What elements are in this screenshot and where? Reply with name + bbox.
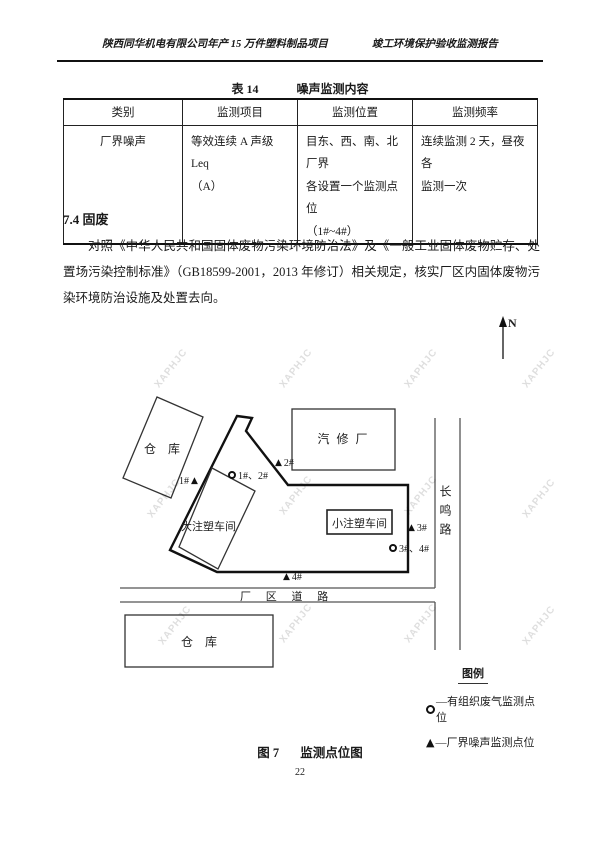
large-workshop-label: 大注塑车间 bbox=[181, 518, 236, 534]
figure-caption: 图 7 监测点位图 bbox=[110, 742, 510, 761]
legend-title: 图例 bbox=[458, 665, 488, 684]
auto-repair-label: 汽 修 厂 bbox=[292, 430, 395, 447]
noise-point-4-label: 4# bbox=[292, 572, 302, 583]
page-number: 22 bbox=[0, 767, 600, 778]
cell-frequency: 连续监测 2 天，昼夜各 监测一次 bbox=[413, 125, 538, 244]
table-number: 表 14 bbox=[231, 80, 258, 97]
section-heading: 7.4 固废 bbox=[63, 209, 109, 228]
noise-point-icon: ▲ bbox=[283, 573, 290, 582]
section-paragraph: 对照《中华人民共和国固体废物污染环境防治法》及《一般工业固体废物贮存、处置场污染… bbox=[63, 233, 540, 311]
noise-point-1-label: 1# bbox=[179, 476, 189, 487]
col-header-category: 类别 bbox=[64, 99, 183, 125]
running-header: 陕西同华机电有限公司年产 15 万件塑料制品项目 竣工环境保护验收监测报告 bbox=[57, 36, 543, 51]
factory-road-label: 厂 区 道 路 bbox=[240, 588, 330, 604]
warehouse-bottom-label: 仓 库 bbox=[157, 633, 241, 650]
col-header-location: 监测位置 bbox=[298, 99, 413, 125]
noise-point-3-label: 3# bbox=[417, 523, 427, 534]
changming-road-label: 长鸣路 bbox=[437, 485, 454, 542]
legend-gas-label: —有组织废气监测点位 bbox=[436, 693, 545, 725]
small-workshop-label: 小注塑车间 bbox=[327, 515, 392, 531]
noise-point-2-label: 2# bbox=[284, 458, 294, 469]
noise-point-2: ▲ 2# bbox=[275, 458, 294, 469]
north-label: N bbox=[508, 316, 517, 331]
noise-point-3: ▲ 3# bbox=[408, 523, 427, 534]
gas-point-icon bbox=[389, 544, 397, 552]
monitoring-site-map: XAPHJC XAPHJC XAPHJC XAPHJC XAPHJC XAPHJ… bbox=[100, 315, 545, 727]
legend-gas-row: —有组织废气监测点位 bbox=[426, 693, 545, 725]
gas-point-1-2-label: 1#、2# bbox=[238, 467, 268, 482]
table-caption-text: 噪声监测内容 bbox=[297, 80, 369, 97]
table-header-row: 类别 监测项目 监测位置 监测频率 bbox=[64, 99, 538, 125]
gas-point-1-2: 1#、2# bbox=[228, 467, 268, 482]
gas-point-3-4: 3#、4# bbox=[389, 540, 429, 555]
map-legend: 图例 —有组织废气监测点位 ▲ —厂界噪声监测点位 bbox=[426, 665, 545, 750]
gas-point-icon bbox=[426, 705, 435, 714]
gas-point-icon bbox=[228, 471, 236, 479]
figure-number: 图 7 bbox=[257, 746, 279, 760]
cell-project: 等效连续 A 声级 Leq （A） bbox=[183, 125, 298, 244]
report-page: 陕西同华机电有限公司年产 15 万件塑料制品项目 竣工环境保护验收监测报告 表 … bbox=[0, 0, 600, 848]
header-divider bbox=[57, 60, 543, 62]
noise-point-4: ▲ 4# bbox=[283, 572, 302, 583]
figure-title: 监测点位图 bbox=[300, 746, 363, 760]
noise-monitoring-table: 类别 监测项目 监测位置 监测频率 厂界噪声 等效连续 A 声级 Leq （A）… bbox=[63, 98, 538, 245]
col-header-frequency: 监测频率 bbox=[413, 99, 538, 125]
gas-point-3-4-label: 3#、4# bbox=[399, 540, 429, 555]
header-report-title: 竣工环境保护验收监测报告 bbox=[372, 36, 498, 51]
col-header-project: 监测项目 bbox=[183, 99, 298, 125]
north-arrow-head bbox=[499, 316, 507, 327]
noise-point-icon: ▲ bbox=[408, 524, 415, 533]
cell-location: 目东、西、南、北厂界 各设置一个监测点位 （1#~4#） bbox=[298, 125, 413, 244]
table-row: 厂界噪声 等效连续 A 声级 Leq （A） 目东、西、南、北厂界 各设置一个监… bbox=[64, 125, 538, 244]
noise-point-1: 1# ▲ bbox=[179, 476, 198, 487]
noise-point-icon: ▲ bbox=[275, 459, 282, 468]
table-title: 表 14 噪声监测内容 bbox=[63, 80, 537, 97]
header-project-title: 陕西同华机电有限公司年产 15 万件塑料制品项目 bbox=[102, 36, 328, 51]
warehouse-top-label: 仓 库 bbox=[120, 440, 204, 457]
noise-point-icon: ▲ bbox=[191, 477, 198, 486]
